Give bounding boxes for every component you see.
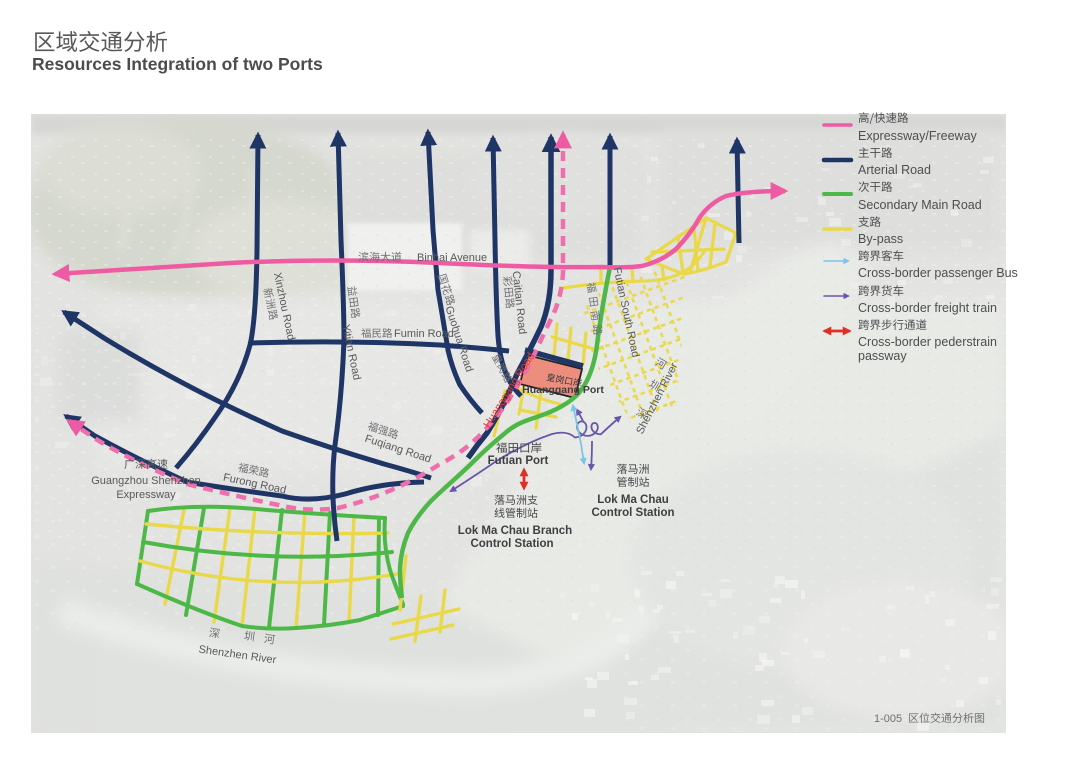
svg-text:Lok Ma Chau Branch: Lok Ma Chau Branch bbox=[458, 525, 572, 537]
svg-text:1-005: 1-005 bbox=[874, 713, 902, 725]
svg-text:Cross-border passenger Bus: Cross-border passenger Bus bbox=[858, 266, 1018, 280]
svg-text:Futian Port: Futian Port bbox=[488, 455, 549, 467]
svg-text:Lok Ma Chau: Lok Ma Chau bbox=[597, 494, 669, 506]
svg-text:Control Station: Control Station bbox=[591, 507, 674, 519]
svg-text:Guangzhou Shenzhen: Guangzhou Shenzhen bbox=[91, 475, 200, 487]
svg-text:passway: passway bbox=[858, 349, 907, 363]
svg-text:Expressway: Expressway bbox=[116, 489, 176, 501]
svg-text:Binhai Avenue: Binhai Avenue bbox=[417, 252, 487, 264]
svg-text:Fumin Road: Fumin Road bbox=[394, 328, 454, 340]
svg-text:Cross-border freight train: Cross-border freight train bbox=[858, 301, 997, 315]
svg-text:Huanggang Port: Huanggang Port bbox=[522, 384, 604, 396]
svg-text:Control Station: Control Station bbox=[470, 538, 553, 550]
svg-text:Secondary Main Road: Secondary Main Road bbox=[858, 198, 982, 212]
svg-text:Resources Integration of two P: Resources Integration of two Ports bbox=[32, 54, 323, 74]
svg-text:By-pass: By-pass bbox=[858, 232, 903, 246]
svg-text:Expressway/Freeway: Expressway/Freeway bbox=[858, 129, 978, 143]
svg-text:Cross-border pederstrain: Cross-border pederstrain bbox=[858, 335, 997, 349]
svg-text:Arterial Road: Arterial Road bbox=[858, 163, 931, 177]
